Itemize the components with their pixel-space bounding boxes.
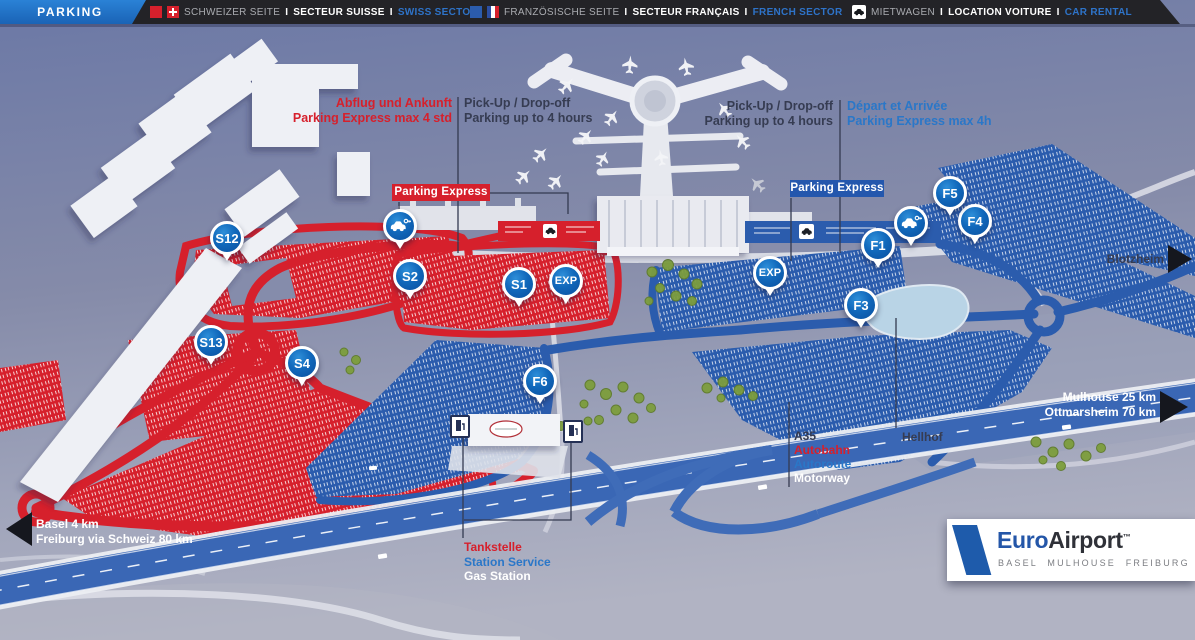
parking-express-box-french: Parking Express — [790, 180, 884, 197]
car-rental-icon — [852, 5, 866, 19]
header-shadow — [0, 24, 1195, 27]
legend-car-rental: MIETWAGEN I LOCATION VOITURE I CAR RENTA… — [852, 0, 1132, 24]
french-label-en: FRENCH SECTOR — [753, 7, 843, 18]
direction-mulhouse: Mulhouse 25 km Ottmarsheim 70 km — [1045, 390, 1156, 419]
french-label-de: FRANZÖSISCHE SEITE — [504, 7, 619, 18]
rental-label-en: CAR RENTAL — [1065, 7, 1132, 18]
swiss-label-en: SWISS SECTOR — [398, 7, 478, 18]
rental-label-fr: LOCATION VOITURE — [948, 7, 1052, 18]
car-key-icon — [900, 215, 922, 231]
pickup-dropoff-left: Pick-Up / Drop-off Parking up to 4 hours — [464, 96, 593, 125]
parking-marker-exp-swiss[interactable]: EXP — [549, 264, 583, 312]
direction-basel: Basel 4 km Freiburg via Schweiz 80 km — [36, 517, 193, 546]
gas-pump-icon — [563, 420, 583, 443]
car-rental-marker-swiss[interactable] — [383, 209, 417, 257]
rental-label-de: MIETWAGEN — [871, 7, 935, 18]
logo-subtitle: BASEL MULHOUSE FREIBURG — [998, 558, 1190, 568]
parking-marker-s1[interactable]: S1 — [502, 267, 536, 315]
parking-marker-s13[interactable]: S13 — [194, 325, 228, 373]
french-flag-icon — [487, 6, 499, 18]
parking-marker-exp-french[interactable]: EXP — [753, 256, 787, 304]
parking-map-page: PARKING SCHWEIZER SEITE I SECTEUR SUISSE… — [0, 0, 1195, 640]
swiss-express-strip — [498, 221, 600, 241]
header-bar: PARKING SCHWEIZER SEITE I SECTEUR SUISSE… — [0, 0, 1195, 24]
page-title: PARKING — [0, 0, 140, 24]
car-key-icon — [389, 218, 411, 234]
swiss-flag-icon — [167, 6, 179, 18]
parking-marker-s12[interactable]: S12 — [210, 221, 244, 269]
arrow-basel-icon — [6, 512, 32, 546]
gas-station-label: Tankstelle Station Service Gas Station — [464, 540, 551, 584]
arrow-mulhouse-icon — [1160, 391, 1188, 423]
parking-marker-s4[interactable]: S4 — [285, 346, 319, 394]
pickup-dropoff-right: Pick-Up / Drop-off Parking up to 4 hours — [705, 99, 834, 128]
swiss-label-de: SCHWEIZER SEITE — [184, 7, 280, 18]
logo-stripe-icon — [952, 525, 991, 575]
a35-label: A35 Autobahn Autoroute Motorway — [794, 429, 851, 485]
parking-marker-f3[interactable]: F3 — [844, 288, 878, 336]
gas-pump-icon — [450, 415, 470, 438]
french-color-swatch — [470, 6, 482, 18]
hellhof-label: Hellhof — [902, 430, 943, 445]
legend-swiss-sector: SCHWEIZER SEITE I SECTEUR SUISSE I SWISS… — [150, 0, 478, 24]
direction-blotzheim: Blotzheim — [1107, 252, 1164, 267]
parking-marker-f6[interactable]: F6 — [523, 364, 557, 412]
parking-express-box-swiss: Parking Express — [392, 184, 490, 201]
parking-marker-s2[interactable]: S2 — [393, 259, 427, 307]
arrow-blotzheim-icon — [1168, 245, 1192, 273]
car-rental-marker-french[interactable] — [894, 206, 928, 254]
euroairport-logo: EuroAirport™ BASEL MULHOUSE FREIBURG — [947, 519, 1195, 581]
parking-marker-f5[interactable]: F5 — [933, 176, 967, 224]
swiss-color-swatch — [150, 6, 162, 18]
logo-brand: EuroAirport™ — [997, 527, 1130, 554]
parking-marker-f1[interactable]: F1 — [861, 228, 895, 276]
legend-french-sector: FRANZÖSISCHE SEITE I SECTEUR FRANÇAIS I … — [470, 0, 842, 24]
french-express-annotation: Départ et Arrivée Parking Express max 4h — [847, 99, 992, 128]
swiss-label-fr: SECTEUR SUISSE — [293, 7, 384, 18]
french-label-fr: SECTEUR FRANÇAIS — [633, 7, 740, 18]
swiss-express-annotation: Abflug und Ankunft Parking Express max 4… — [293, 96, 452, 125]
